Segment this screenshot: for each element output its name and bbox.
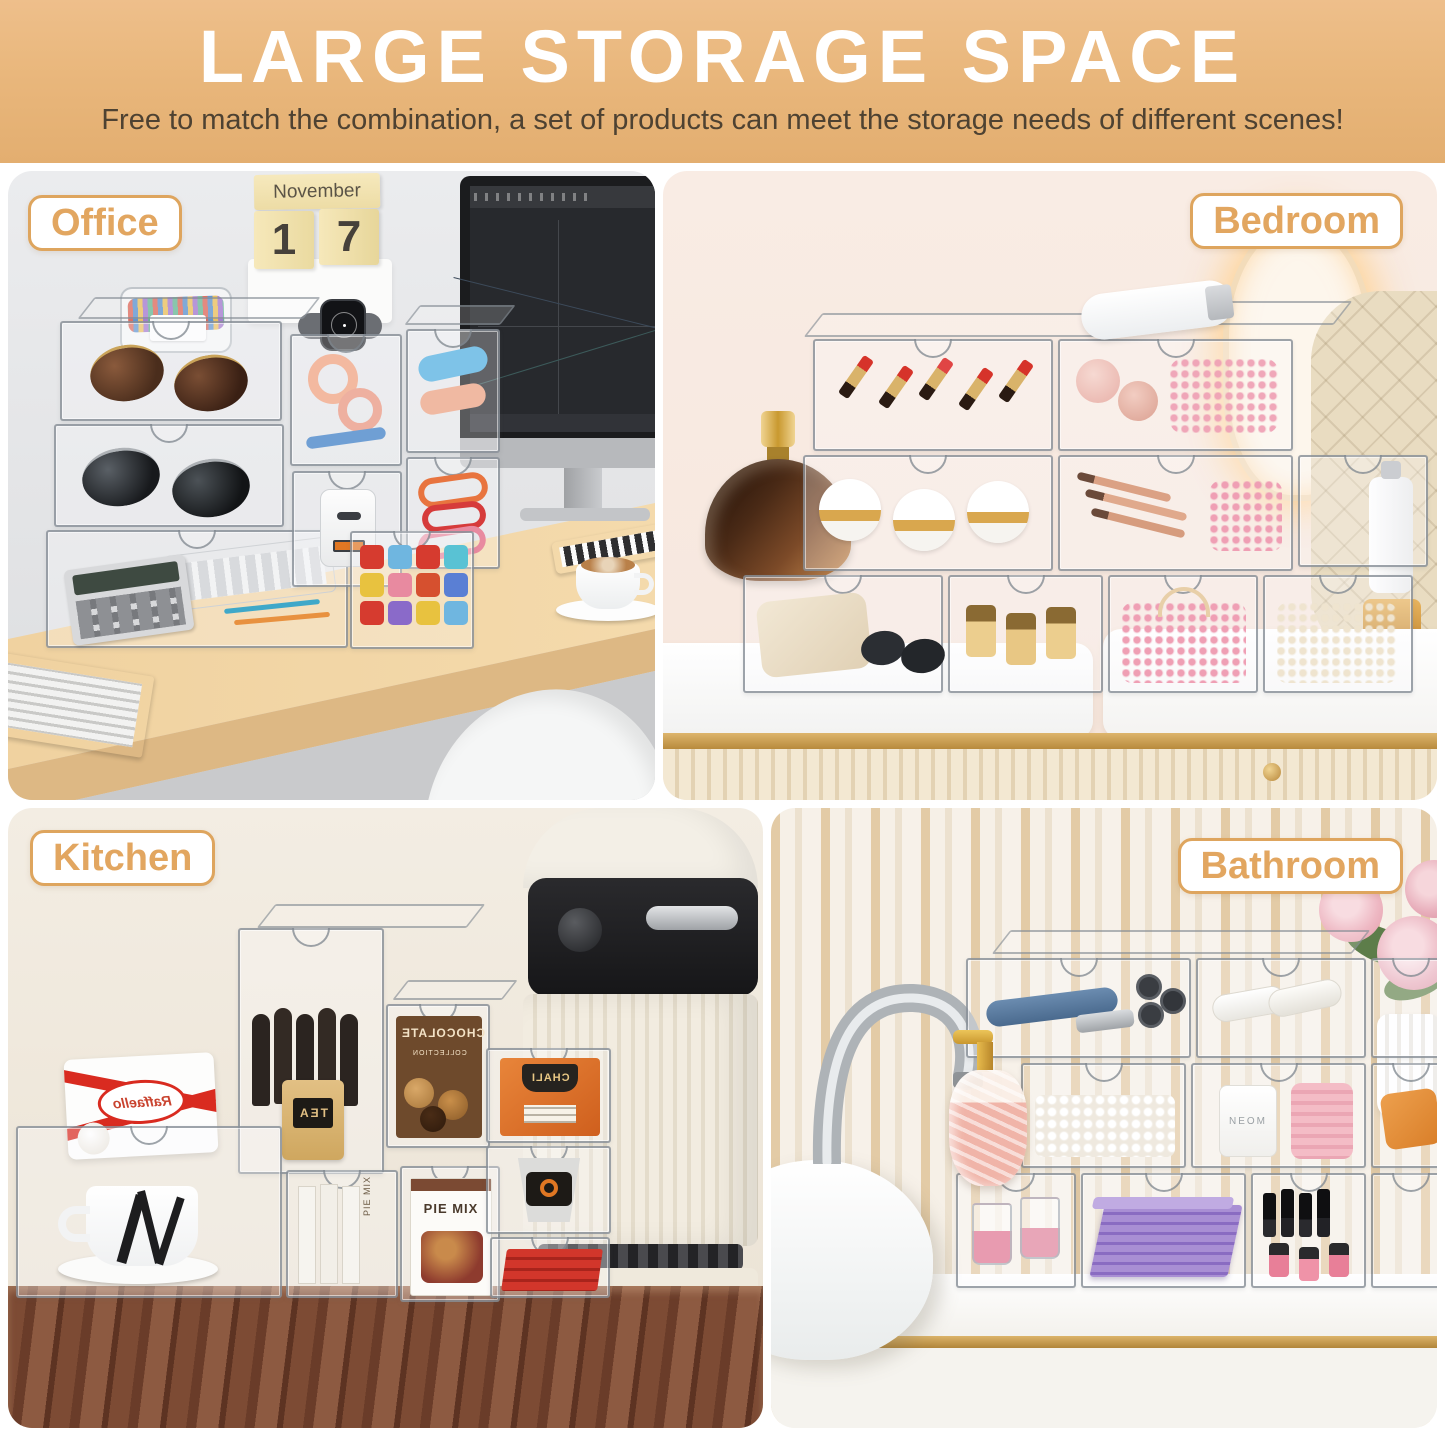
drawer-mug: [16, 1126, 282, 1298]
drawer-sunglasses-2: [54, 424, 284, 527]
drawer-glasses: [956, 1173, 1076, 1288]
drawer-right-mid: [1371, 1063, 1437, 1168]
drawer-lid: [992, 930, 1371, 954]
product-infographic: LARGE STORAGE SPACE Free to match the co…: [0, 0, 1445, 1436]
pie-mix-top-band: [411, 1179, 491, 1191]
chali-box: CHALI: [500, 1058, 600, 1136]
pink-polish-bottle: [1299, 1247, 1319, 1281]
calendar-day-block-ones: 7: [319, 209, 379, 265]
drawer-brushes: [1058, 455, 1293, 571]
drawer-nail-polish-gold: [948, 575, 1103, 693]
sunglasses-lens: [168, 453, 254, 522]
bedroom-label: Bedroom: [1213, 200, 1380, 243]
pill-cube-grid: [358, 543, 470, 627]
lipstick: [998, 359, 1034, 404]
cosmetic-pouch: [755, 591, 872, 678]
white-roller: [1266, 977, 1344, 1020]
drawer-rollers: [1196, 958, 1366, 1058]
coffee-machine-black-band: [528, 878, 758, 996]
gold-polish-bottle: [966, 605, 996, 657]
calendar-day-ones: 7: [337, 212, 361, 262]
gold-polish-bottle: [1006, 613, 1036, 665]
drawer-right-bottom: [1371, 1173, 1437, 1288]
pink-towel-roll: [1291, 1083, 1353, 1159]
scene-kitchen-photo: TEA CHOCOLATE COLLECTION Raffaello: [8, 808, 763, 1428]
drawer-lipsticks: [813, 339, 1053, 451]
machine-chrome-lever: [646, 906, 738, 930]
pink-polish-bottle: [1269, 1243, 1289, 1277]
pie-mix-box: PIE MIX: [410, 1178, 492, 1296]
cream-jar: [967, 481, 1029, 543]
mug: [86, 1186, 198, 1266]
pie-mix-carton: [298, 1186, 316, 1284]
pie-mix-carton: [320, 1184, 338, 1284]
viewport-grid-line: [558, 220, 559, 432]
blue-strap: [306, 426, 387, 449]
drawer-cream-jars: [803, 455, 1053, 571]
lipstick: [878, 365, 914, 410]
drawer-pouch: [743, 575, 943, 693]
drawer-pie-mix-cartons: PIE MIX: [286, 1170, 398, 1298]
lipstick: [838, 355, 874, 400]
pie-mix-carton: [342, 1186, 360, 1284]
monitor-stand: [564, 468, 602, 510]
drawer-cotton: [1021, 1063, 1186, 1168]
candle-jar: NEOM: [1219, 1085, 1277, 1157]
mug-handle: [58, 1206, 90, 1242]
collection-text: COLLECTION: [412, 1050, 467, 1057]
purple-mask-stack: [1089, 1205, 1242, 1277]
drawer-razor: [966, 958, 1191, 1058]
drawer-lid: [392, 980, 518, 1000]
mug-stripe: [155, 1196, 184, 1265]
drawer-pearls-white: [1263, 575, 1413, 693]
chocolate-box: CHOCOLATE COLLECTION: [396, 1016, 482, 1138]
monitor-base: [520, 508, 650, 521]
drawer-candle-towel: NEOM: [1191, 1063, 1366, 1168]
page-subtitle: Free to match the combination, a set of …: [0, 104, 1445, 137]
scene-bedroom-photo: Bedroom: [663, 171, 1437, 800]
office-label: Office: [51, 202, 159, 245]
office-label-badge: Office: [28, 195, 182, 251]
coffee-cup: [576, 563, 640, 609]
wood-table: [8, 1286, 763, 1428]
sunglasses-lens: [898, 635, 947, 676]
bottle-cap: [1205, 284, 1235, 321]
drawer-tape: [290, 334, 402, 466]
compact-blush: [1118, 381, 1158, 421]
pearl-bag-white: [1277, 603, 1397, 683]
kitchen-label-badge: Kitchen: [30, 830, 215, 886]
cookie: [420, 1106, 446, 1132]
drawer-lid: [257, 904, 486, 928]
pie-mix-side-text: PIE MIX: [362, 1146, 376, 1216]
drawer-pie-mix-front: PIE MIX: [400, 1166, 500, 1302]
bathroom-label: Bathroom: [1201, 845, 1380, 888]
tea-bag: [252, 1014, 270, 1106]
charger-usbc-port: [337, 512, 361, 520]
machine-knob: [558, 908, 602, 952]
pie-mix-title: PIE MIX: [411, 1201, 491, 1216]
drawer-right-top: [1371, 958, 1437, 1058]
drawer-face-masks: [1081, 1173, 1246, 1288]
pink-polish-bottle: [1329, 1243, 1349, 1277]
rose-bloom: [1405, 860, 1437, 918]
vanity-gold-trim: [663, 733, 1437, 749]
black-polish-bottle: [1281, 1189, 1294, 1237]
tea-label: TEA: [298, 1106, 328, 1120]
drawer-lid: [404, 305, 516, 325]
dispenser-texture: [949, 1070, 1027, 1186]
goggle-band: [416, 344, 490, 384]
orange-towel: [1379, 1087, 1437, 1150]
calendar-day-block-tens: 1: [254, 211, 314, 269]
shaver-head: [1136, 974, 1162, 1000]
drawer-sunglasses-1: [60, 321, 282, 421]
drawer-jewelry: [1058, 339, 1293, 451]
monitor-toolbar: [470, 186, 655, 208]
toner-bottle-lying: [1079, 278, 1235, 342]
drip-coffee-label: [526, 1172, 572, 1206]
soap-dispenser-body: [949, 1070, 1027, 1186]
tape-roll: [338, 388, 382, 432]
drawer-chocolate: CHOCOLATE COLLECTION: [386, 1004, 490, 1148]
drawer-pearls-pink: [1108, 575, 1258, 693]
viewport-grid-line: [478, 326, 655, 327]
compact-blush: [1076, 359, 1120, 403]
tea-pouch-label: TEA: [293, 1098, 333, 1128]
drip-orange-ring: [540, 1179, 558, 1197]
raffaello-text: Raffaello: [112, 1092, 172, 1111]
tea-pouch: TEA: [282, 1080, 344, 1160]
drawer-red-packets: [490, 1237, 610, 1298]
pen: [234, 612, 330, 625]
black-polish-bottle: [1299, 1193, 1312, 1237]
drawer-pill-cubes: [350, 531, 474, 649]
lipstick: [918, 357, 954, 402]
drawer-empty-right: [1298, 455, 1428, 567]
soap-dispenser-stem: [977, 1042, 993, 1072]
chali-label-card: [516, 1100, 584, 1128]
chali-text: CHALI: [531, 1072, 570, 1084]
candle-brand: NEOM: [1229, 1116, 1267, 1127]
scene-bathroom-photo: NEOM Bathroom: [771, 808, 1437, 1428]
chali-badge: CHALI: [522, 1064, 578, 1092]
red-packet-stack: [501, 1249, 603, 1291]
pie-mix-label: PIE MIX: [424, 1201, 479, 1216]
cream-jar: [893, 489, 955, 551]
sunglasses-lens: [86, 339, 169, 407]
pie-mix-vertical-label: PIE MIX: [362, 1176, 372, 1216]
drawer-chali: CHALI: [486, 1048, 611, 1143]
drawer-lid: [77, 297, 320, 319]
sunglasses-lens: [170, 349, 253, 417]
drawer-drip-coffee: [486, 1146, 611, 1234]
sunglasses-lens: [78, 442, 164, 511]
cookie: [404, 1078, 434, 1108]
drip-coffee-cup: [512, 1158, 586, 1222]
perfume-cap: [761, 411, 795, 447]
tumbler-glass: [972, 1203, 1012, 1265]
purple-mask-top-sheet: [1092, 1197, 1235, 1209]
cream-jar: [819, 479, 881, 541]
coffee-machine-dome: [523, 808, 758, 888]
bathroom-label-badge: Bathroom: [1178, 838, 1403, 894]
kitchen-label: Kitchen: [53, 837, 192, 880]
vanity-knob: [1263, 763, 1281, 781]
calendar-month: November: [273, 180, 361, 204]
calendar-month-block: November: [254, 173, 381, 210]
tumbler-glass: [1020, 1197, 1060, 1259]
goggle-band: [418, 381, 487, 416]
bag-handle: [1158, 587, 1210, 617]
page-title: LARGE STORAGE SPACE: [0, 14, 1445, 99]
calculator-keys: [76, 587, 186, 639]
black-polish-bottle: [1317, 1189, 1330, 1237]
scene-office-photo: November 1 7: [8, 171, 655, 800]
chocolate-label: CHOCOLATE COLLECTION: [401, 1024, 477, 1066]
black-polish-bottle: [1263, 1193, 1276, 1237]
shaver-head: [1138, 1002, 1164, 1028]
lipstick: [958, 367, 994, 412]
drawer-goggles: [406, 329, 500, 453]
vanity-ribbed-front: [663, 749, 1437, 800]
counter-front: [771, 1348, 1437, 1428]
drawer-lid: [804, 313, 1123, 337]
gold-polish-bottle: [1046, 607, 1076, 659]
chocolate-text: CHOCOLATE: [401, 1026, 485, 1040]
header-banner: LARGE STORAGE SPACE Free to match the co…: [0, 0, 1445, 163]
shaver-head: [1160, 988, 1186, 1014]
pie-photo: [421, 1231, 483, 1283]
jewelry-cluster: [1170, 359, 1278, 433]
bedroom-label-badge: Bedroom: [1190, 193, 1403, 249]
pearl-pouch-pink: [1210, 481, 1282, 551]
drawer-nail-polish: [1251, 1173, 1366, 1288]
calculator: [63, 554, 194, 646]
calendar-day-tens: 1: [272, 215, 296, 265]
cotton-swabs: [1035, 1095, 1175, 1157]
latte-art: [581, 557, 635, 573]
